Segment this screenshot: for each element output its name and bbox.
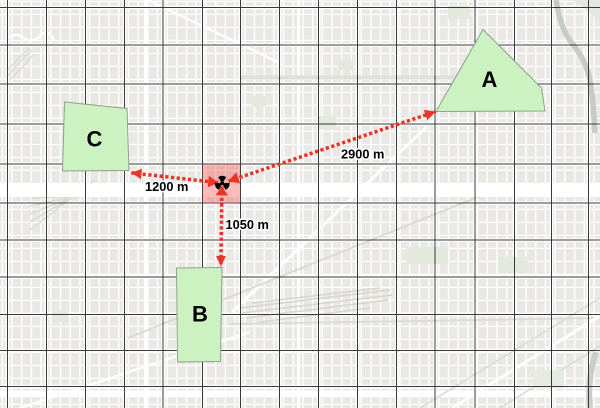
svg-text:1200 m: 1200 m xyxy=(145,179,188,194)
svg-text:C: C xyxy=(87,127,103,152)
svg-text:B: B xyxy=(192,302,208,327)
svg-text:2900 m: 2900 m xyxy=(341,147,384,162)
svg-text:A: A xyxy=(482,67,498,92)
svg-text:1050 m: 1050 m xyxy=(226,217,269,232)
